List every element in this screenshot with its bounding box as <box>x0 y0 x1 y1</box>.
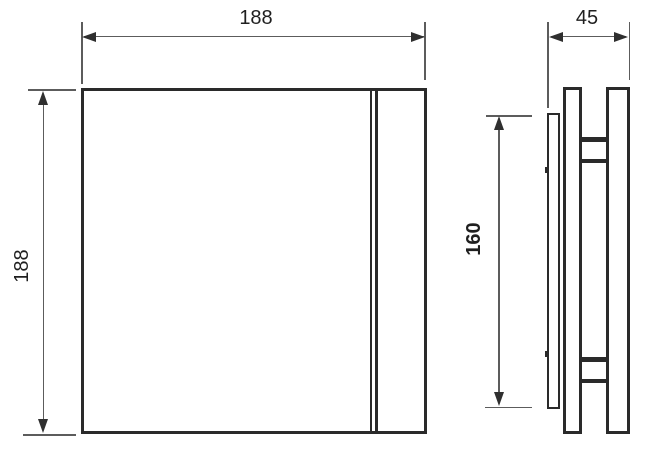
body-connector-top-lower <box>580 159 608 164</box>
dim-inner-height-arrowhead-bottom <box>494 392 504 406</box>
side-view-front-panel <box>547 113 560 409</box>
dim-depth-arrowhead-right <box>614 32 628 42</box>
body-connector-top-upper <box>580 137 608 142</box>
dim-height-label: 188 <box>12 236 32 296</box>
dim-inner-height-extension-bottom <box>485 407 532 409</box>
dim-width-arrowhead-right <box>411 32 425 42</box>
panel-clip-top <box>545 167 548 173</box>
dim-inner-height-arrowhead-top <box>494 116 504 130</box>
dim-depth-label: 45 <box>562 8 612 28</box>
dim-depth-arrowhead-left <box>549 32 563 42</box>
dim-height-arrowhead-bottom <box>38 419 48 433</box>
technical-drawing-canvas: 188 188 45 160 <box>0 0 669 459</box>
dim-height-line <box>43 94 45 420</box>
body-connector-bottom-lower <box>580 379 608 384</box>
dim-width-label: 188 <box>226 8 286 28</box>
side-view-body-back <box>606 87 630 434</box>
body-connector-bottom-upper <box>580 357 608 362</box>
dim-depth-extension-right <box>629 22 631 80</box>
dim-height-arrowhead-top <box>38 91 48 105</box>
front-cover-edge-line-1 <box>370 91 372 431</box>
dim-width-arrowhead-left <box>82 32 96 42</box>
panel-clip-bottom <box>545 351 548 357</box>
dim-width-line <box>84 36 424 38</box>
front-cover-edge-line-2 <box>375 91 378 431</box>
dim-inner-height-line <box>498 119 500 403</box>
dim-height-extension-top <box>28 89 76 91</box>
dim-inner-height-label: 160 <box>464 209 484 269</box>
dim-height-extension-bottom <box>23 434 76 436</box>
